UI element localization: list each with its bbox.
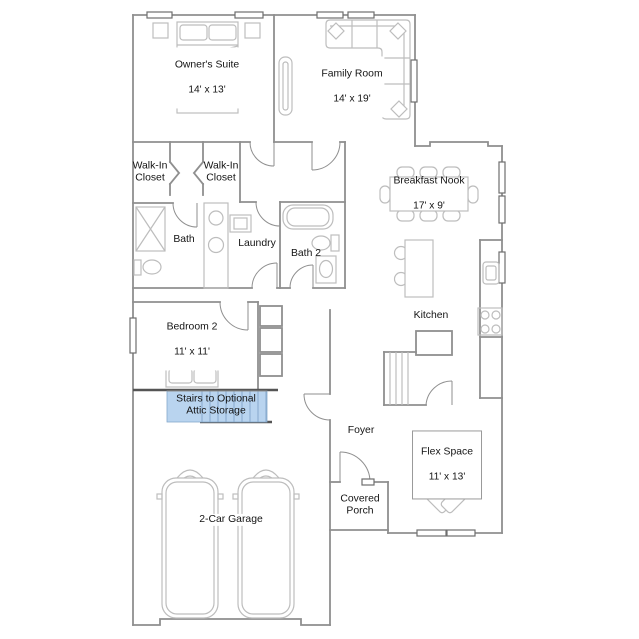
laundry-door-south — [252, 263, 277, 288]
room-dims: 17' x 9' — [393, 200, 464, 212]
room-label-flex-space: Flex Space 11' x 13' — [412, 430, 482, 499]
room-label-foyer: Foyer — [348, 425, 375, 437]
bath2-door — [290, 265, 313, 288]
bath-door — [173, 203, 197, 227]
room-label-breakfast-nook: Breakfast Nook 17' x 9' — [393, 163, 464, 224]
front-door — [340, 452, 370, 482]
room-label-bedroom-2: Bedroom 2 11' x 11' — [165, 309, 220, 370]
room-name: Breakfast Nook — [393, 176, 464, 188]
washer — [230, 215, 251, 232]
hall-family-door — [312, 142, 340, 170]
room-name: Owner's Suite — [175, 60, 239, 72]
tall-window — [279, 57, 292, 115]
room-label-bath: Bath — [173, 234, 194, 246]
pantry-shelves — [390, 352, 408, 405]
bath2-tub — [283, 205, 333, 229]
room-dims: 11' x 13' — [421, 471, 473, 483]
room-label-attic-stairs: Stairs to Optional Attic Storage — [176, 394, 256, 419]
room-label-owners-suite: Owner's Suite 14' x 13' — [173, 47, 241, 108]
room-label-kitchen: Kitchen — [414, 310, 449, 322]
room-dims: 14' x 19' — [321, 93, 382, 105]
room-name: Family Room — [321, 69, 382, 81]
room-label-walk-in-closet-left: Walk-In Closet — [133, 161, 168, 186]
room-name: Flex Space — [421, 447, 473, 459]
room-label-family-room: Family Room 14' x 19' — [319, 56, 384, 117]
garage-door — [304, 394, 330, 420]
pantry-door — [426, 381, 452, 405]
kitchen-sink — [483, 262, 499, 284]
room-label-garage: 2-Car Garage — [197, 514, 265, 526]
car-1 — [157, 470, 223, 618]
bath-vanity — [204, 203, 228, 288]
floor-plan: Owner's Suite 14' x 13' Family Room 14' … — [0, 0, 639, 639]
bath-toilet — [134, 260, 161, 275]
owners-suite-door — [250, 142, 274, 166]
car-2 — [233, 470, 299, 618]
room-dims: 14' x 13' — [175, 84, 239, 96]
kitchen-island — [395, 240, 434, 297]
stove — [478, 308, 502, 335]
room-label-covered-porch: Covered Porch — [340, 494, 379, 519]
room-dims: 11' x 11' — [167, 346, 218, 358]
nightstand-left — [153, 23, 168, 38]
room-label-walk-in-closet-right: Walk-In Closet — [204, 161, 239, 186]
shower — [136, 207, 165, 251]
bedroom2-door — [220, 302, 248, 330]
room-name: Bedroom 2 — [167, 322, 218, 334]
room-label-laundry: Laundry — [238, 238, 276, 250]
room-label-bath-2: Bath 2 — [291, 248, 321, 260]
nightstand-right — [245, 23, 260, 38]
laundry-door-north — [256, 202, 280, 226]
